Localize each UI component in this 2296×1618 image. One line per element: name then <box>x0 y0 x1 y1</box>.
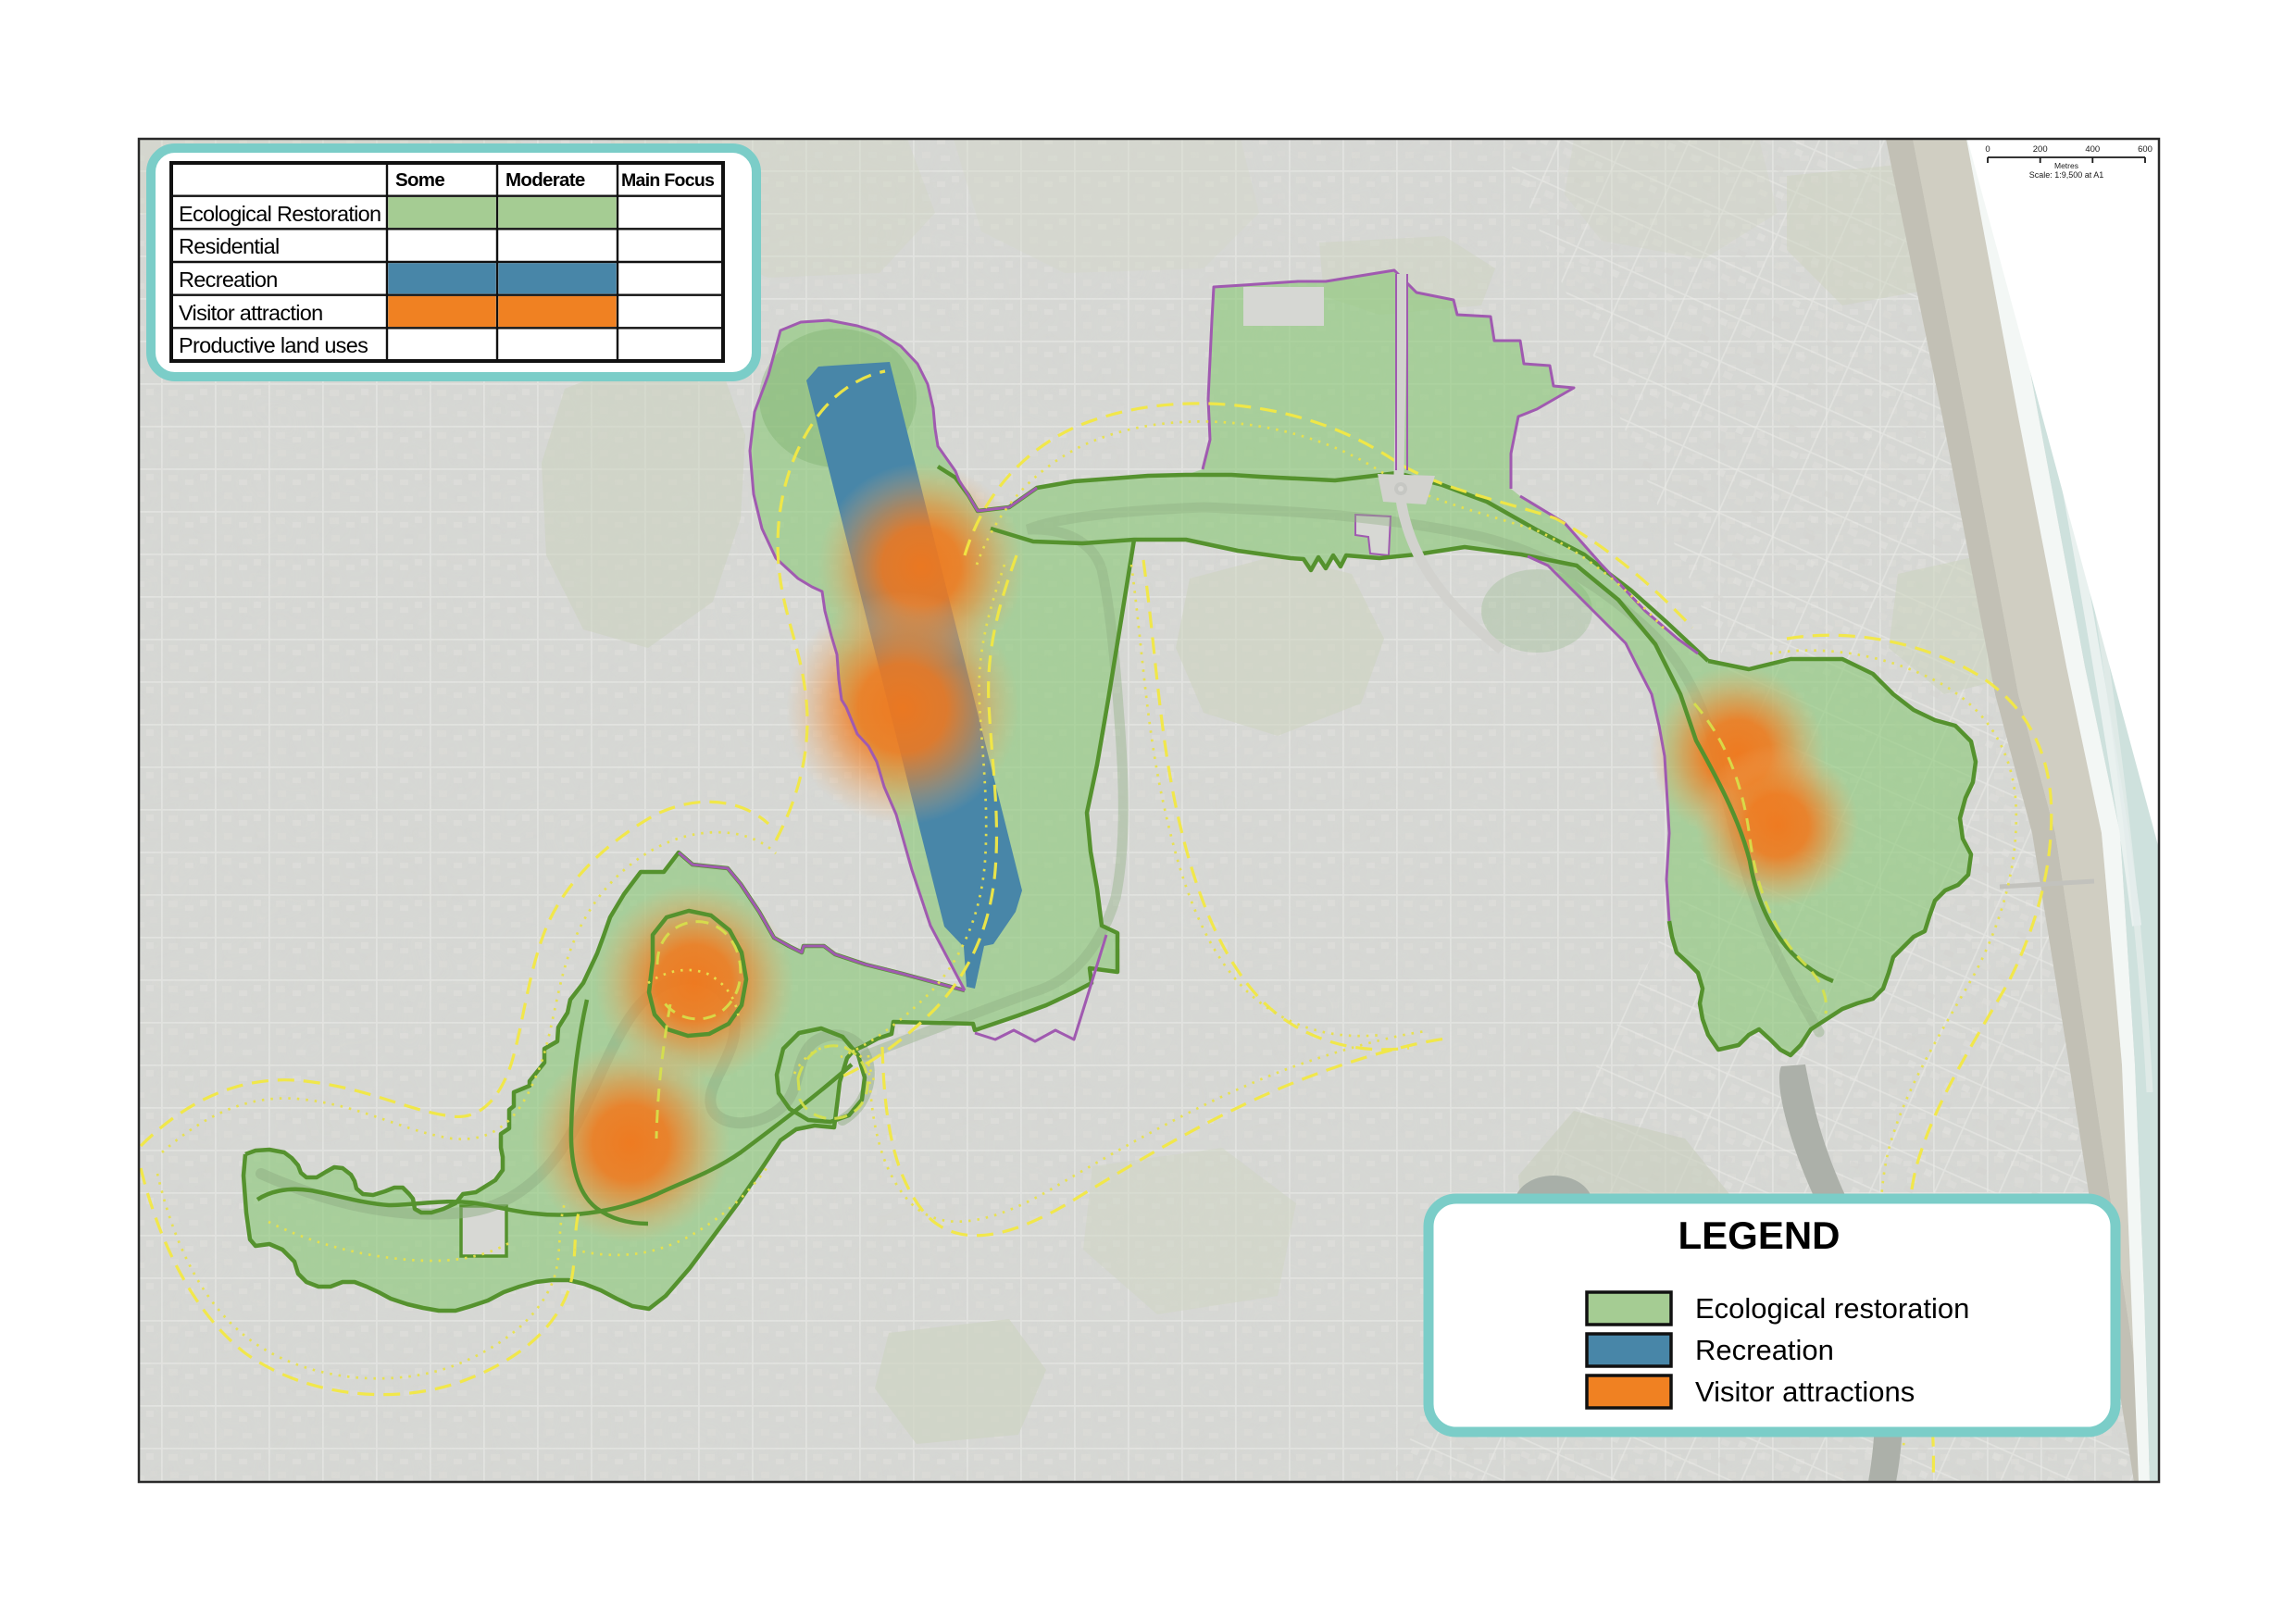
svg-text:200: 200 <box>2033 144 2048 155</box>
svg-text:Main Focus: Main Focus <box>621 170 715 191</box>
svg-text:Residential: Residential <box>179 234 280 258</box>
svg-text:Visitor attraction: Visitor attraction <box>179 301 322 325</box>
svg-text:Ecological restoration: Ecological restoration <box>1695 1292 1969 1325</box>
svg-text:Moderate: Moderate <box>505 169 585 191</box>
svg-text:0: 0 <box>1985 144 1990 155</box>
svg-text:Ecological Restoration: Ecological Restoration <box>179 202 381 226</box>
svg-text:400: 400 <box>2085 144 2100 155</box>
svg-text:Recreation: Recreation <box>179 268 278 292</box>
svg-text:Recreation: Recreation <box>1695 1334 1834 1366</box>
svg-text:Scale: 1:9,500 at A1: Scale: 1:9,500 at A1 <box>2029 170 2104 180</box>
svg-text:Visitor attractions: Visitor attractions <box>1695 1375 1915 1408</box>
svg-text:Productive land uses: Productive land uses <box>179 333 368 357</box>
svg-text:LEGEND: LEGEND <box>1678 1213 1840 1257</box>
svg-text:600: 600 <box>2138 144 2152 155</box>
svg-text:Some: Some <box>395 169 444 191</box>
svg-text:Metres: Metres <box>2054 161 2078 170</box>
